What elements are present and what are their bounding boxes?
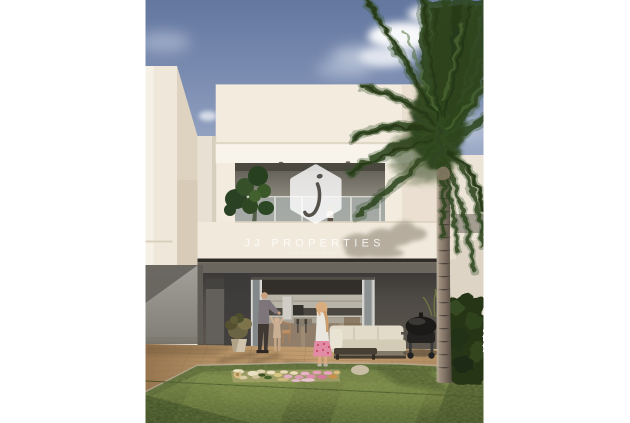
svg-text:REAL ESTATE AGENCY: REAL ESTATE AGENCY (289, 251, 340, 255)
svg-text:JJ PROPERTIES: JJ PROPERTIES (244, 238, 384, 250)
